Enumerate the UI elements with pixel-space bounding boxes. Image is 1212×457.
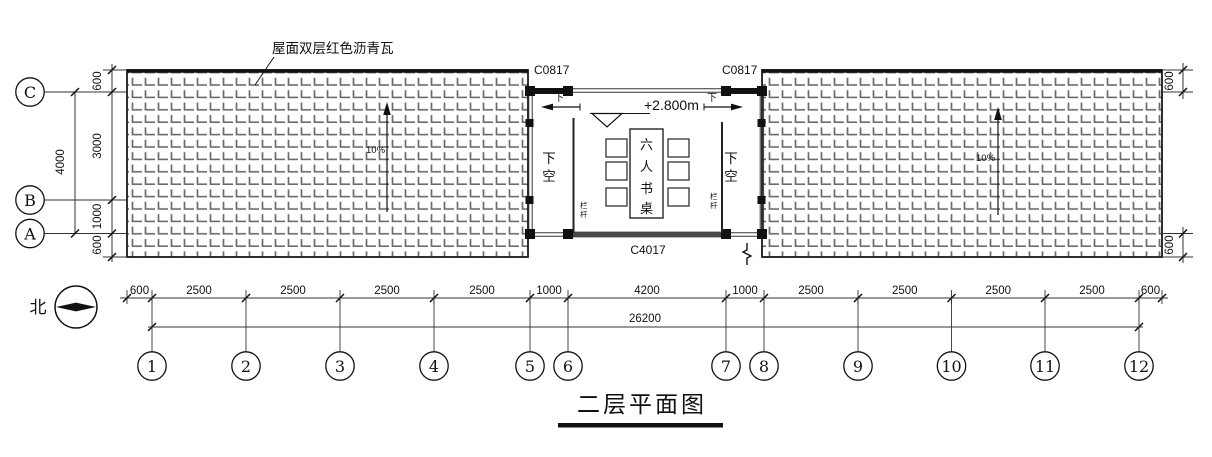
svg-text:2500: 2500 bbox=[374, 285, 400, 297]
grid-bubble-label: 3 bbox=[335, 357, 345, 376]
dim-labels-bottom: 600 2500 2500 2500 2500 1000 4200 1000 2… bbox=[130, 285, 1160, 297]
svg-text:4200: 4200 bbox=[634, 285, 660, 297]
svg-text:人: 人 bbox=[640, 159, 653, 174]
roof-left bbox=[127, 70, 528, 257]
roof-right bbox=[762, 70, 1162, 257]
grid-bubble-label: C bbox=[24, 83, 36, 102]
svg-text:2500: 2500 bbox=[186, 285, 212, 297]
svg-text:600: 600 bbox=[1141, 285, 1160, 297]
grid-bubble-label: B bbox=[24, 191, 36, 210]
grid-bubble-label: 1 bbox=[147, 357, 157, 376]
title-underline bbox=[558, 423, 723, 428]
floor-plan-sheet: 屋面双层红色沥青瓦 10% 10% bbox=[0, 0, 1212, 457]
svg-text:2500: 2500 bbox=[280, 285, 306, 297]
svg-text:栏: 栏 bbox=[710, 191, 718, 201]
void-label-right: 下 空 bbox=[724, 151, 738, 184]
svg-text:空: 空 bbox=[542, 169, 556, 184]
svg-text:2500: 2500 bbox=[892, 285, 918, 297]
slope-label: 10% bbox=[366, 145, 386, 156]
svg-text:2500: 2500 bbox=[1079, 285, 1105, 297]
grid-bubble-label: 5 bbox=[525, 357, 535, 376]
floor-plan-drawing: 屋面双层红色沥青瓦 10% 10% bbox=[0, 0, 1212, 457]
roof-note: 屋面双层红色沥青瓦 bbox=[272, 40, 394, 56]
svg-text:600: 600 bbox=[130, 285, 149, 297]
svg-text:600: 600 bbox=[92, 71, 104, 90]
down-label: 下 bbox=[707, 93, 717, 104]
svg-text:杆: 杆 bbox=[710, 200, 718, 210]
svg-text:书: 书 bbox=[640, 181, 653, 196]
page-title: 二层平面图 bbox=[577, 391, 707, 417]
svg-text:600: 600 bbox=[1164, 235, 1176, 254]
grid-bubble-label: 2 bbox=[241, 357, 251, 376]
void-label-left: 下 空 bbox=[542, 151, 556, 184]
svg-text:下: 下 bbox=[724, 151, 738, 166]
level-mark: +2.800m bbox=[590, 97, 699, 127]
svg-text:1000: 1000 bbox=[536, 285, 562, 297]
svg-text:空: 空 bbox=[724, 169, 738, 184]
grid-bubbles-left: C B A bbox=[16, 78, 44, 248]
grid-bubble-label: 12 bbox=[1129, 357, 1149, 376]
svg-text:桌: 桌 bbox=[640, 201, 653, 216]
svg-text:栏: 栏 bbox=[580, 200, 588, 210]
grid-bubble-label: 7 bbox=[721, 357, 731, 376]
drawing-title-block: 二层平面图 bbox=[558, 391, 723, 428]
svg-text:4000: 4000 bbox=[55, 149, 67, 175]
grid-bubble-label: 8 bbox=[759, 357, 769, 376]
down-label: 下 bbox=[554, 93, 564, 104]
level-label: +2.800m bbox=[644, 97, 699, 113]
slope-label: 10% bbox=[976, 153, 996, 164]
svg-text:六: 六 bbox=[640, 137, 653, 152]
grid-bubble-label: A bbox=[23, 225, 36, 244]
svg-text:600: 600 bbox=[92, 235, 104, 254]
window-label-top-right: C0817 bbox=[722, 63, 758, 77]
level-triangle-icon bbox=[592, 114, 622, 128]
break-mark bbox=[743, 243, 751, 265]
grid-bubble-label: 4 bbox=[429, 357, 439, 376]
compass-needle-icon bbox=[56, 303, 96, 312]
stair-down-arrow-left: 下 bbox=[541, 93, 580, 111]
svg-text:1000: 1000 bbox=[92, 204, 104, 230]
grid-bubble-label: 6 bbox=[563, 357, 573, 376]
svg-text:2500: 2500 bbox=[986, 285, 1012, 297]
dim-total-bottom: 26200 bbox=[148, 313, 1143, 331]
railing-right: 栏 杆 bbox=[710, 122, 722, 233]
window-label-top-left: C0817 bbox=[534, 63, 570, 77]
window-label-bottom: C4017 bbox=[630, 243, 666, 257]
dim-total-left: 4000 bbox=[55, 88, 79, 238]
svg-text:2500: 2500 bbox=[469, 285, 495, 297]
north-label: 北 bbox=[30, 298, 47, 317]
grid-bubble-label: 10 bbox=[941, 357, 961, 376]
north-indicator: 北 bbox=[30, 286, 98, 328]
svg-text:2500: 2500 bbox=[798, 285, 824, 297]
svg-text:1000: 1000 bbox=[732, 285, 758, 297]
dim-chain-right: 600 600 bbox=[1162, 63, 1193, 263]
grid-bubble-label: 9 bbox=[853, 357, 863, 376]
railing-left: 栏 杆 bbox=[574, 118, 589, 233]
svg-text:下: 下 bbox=[542, 151, 556, 166]
svg-text:600: 600 bbox=[1164, 71, 1176, 90]
grid-bubble-label: 11 bbox=[1035, 357, 1055, 376]
svg-text:3000: 3000 bbox=[92, 133, 104, 159]
svg-text:杆: 杆 bbox=[580, 209, 588, 219]
grid-bubbles-bottom: 1 2 3 4 5 6 7 8 9 10 11 12 bbox=[138, 352, 1153, 380]
dim-chain-left: 600 3000 1000 600 bbox=[92, 64, 116, 262]
desk: 六 人 书 桌 bbox=[630, 129, 663, 218]
svg-text:26200: 26200 bbox=[629, 313, 661, 325]
